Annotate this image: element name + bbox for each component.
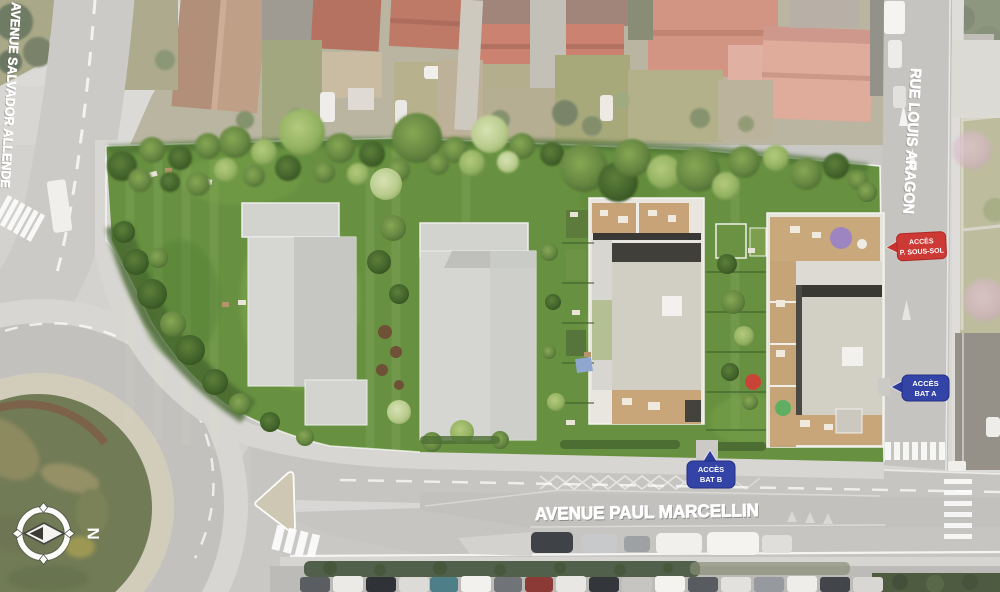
svg-text:BAT A: BAT A xyxy=(914,389,937,398)
svg-text:ACCÈS: ACCÈS xyxy=(912,379,938,388)
svg-text:AVENUE PAUL MARCELLIN: AVENUE PAUL MARCELLIN xyxy=(535,500,759,524)
svg-text:ACCÈS: ACCÈS xyxy=(698,465,724,474)
svg-text:BAT B: BAT B xyxy=(700,475,723,484)
svg-text:N: N xyxy=(84,528,103,540)
